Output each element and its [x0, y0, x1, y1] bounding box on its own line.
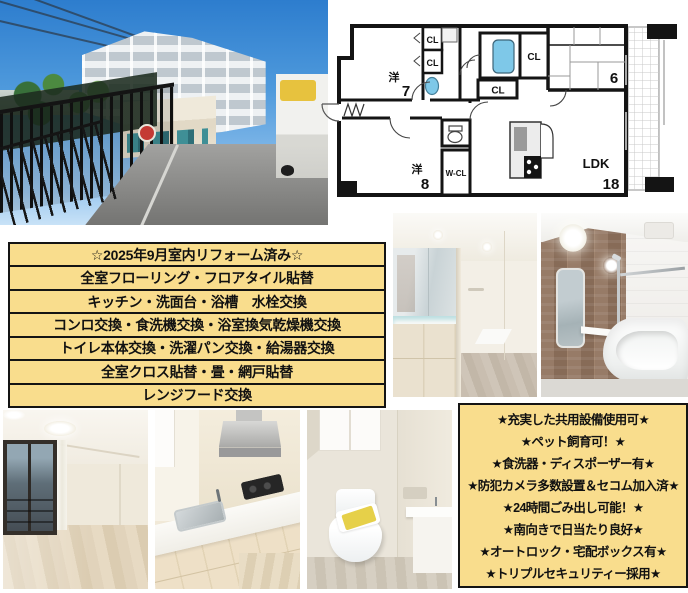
small-faucet: [435, 497, 438, 506]
feature-line: ★トリプルセキュリティー採用★: [461, 563, 685, 582]
wall-corner-line: [119, 464, 121, 532]
bathtub-inner: [616, 331, 677, 369]
balcony-railing: [7, 490, 53, 532]
feature-line: ★防犯カメラ多数設置＆セコム加入済★: [461, 475, 685, 494]
renovation-row: レンジフード交換: [10, 383, 384, 406]
round-ceiling-light: [44, 421, 76, 436]
hand-wash-counter: [406, 507, 452, 518]
vanity-cabinet: [393, 324, 456, 397]
mirror-seam: [428, 248, 430, 316]
ventilation-dryer-unit: [644, 222, 674, 239]
label-closet-2: CL: [427, 58, 439, 68]
round-ceiling-light: [559, 224, 587, 252]
feature-line: ★充実した共用設備使用可★: [461, 409, 685, 428]
renovation-row: キッチン・洗面台・浴槽 水栓交換: [10, 289, 384, 312]
feature-line: ★オートロック・宅配ボックス有★: [461, 541, 685, 560]
bathroom-mirror: [556, 268, 585, 347]
label-walkin-closet: W-CL: [446, 169, 467, 178]
hood-duct: [236, 410, 262, 423]
corner-block-bottom-right: [645, 177, 674, 192]
cabinet-seam: [349, 410, 351, 450]
floor-plan-drawing: 洋 7 CL CL CL CL 6 洋 8 W-CL LDK 18: [330, 0, 688, 210]
drawer-line: [393, 358, 456, 360]
renovation-info-table: ☆2025年9月室内リフォーム済み☆ 全室フローリング・フロアタイル貼替 キッチ…: [8, 242, 386, 408]
label-closet-4: CL: [491, 86, 504, 97]
corner-block-bottom-left: [340, 181, 357, 193]
counter-panel: [413, 517, 452, 572]
photo-bathroom: [541, 213, 688, 397]
upper-cabinet: [155, 410, 175, 467]
range-hood-base: [219, 448, 281, 457]
corner-light: [3, 410, 25, 420]
range-hood: [219, 421, 281, 448]
feature-line: ★24時間ごみ出し可能！★: [461, 497, 685, 516]
label-closet-3: CL: [527, 52, 540, 63]
truck-logo: [280, 80, 317, 101]
photo-washroom-vanity: [393, 213, 537, 397]
feature-line: ★南向きで日当たり良好★: [461, 519, 685, 538]
renovation-row: 全室クロス貼替・畳・網戸貼替: [10, 359, 384, 382]
property-features-box: ★充実した共用設備使用可★ ★ペット飼育可！★ ★食洗器・ディスポーザー有★ ★…: [458, 403, 688, 588]
shower-slide-bar: [617, 261, 620, 329]
laundry-pan: [442, 28, 457, 42]
listing-flyer-canvas: 洋 7 CL CL CL CL 6 洋 8 W-CL LDK 18 ☆2025年…: [0, 0, 688, 593]
label-ldk: LDK: [583, 156, 610, 171]
washbasin: [426, 78, 439, 95]
floor-plan: 洋 7 CL CL CL CL 6 洋 8 W-CL LDK 18: [330, 0, 688, 210]
cabinet-side-shadow: [456, 248, 460, 397]
curb-line: [140, 144, 179, 225]
vanity-counter: [393, 316, 459, 324]
round-red-sign: [138, 124, 156, 142]
renovation-row: ☆2025年9月室内リフォーム済み☆: [10, 244, 384, 265]
toilet-bowl-icon: [448, 132, 462, 143]
upper-cabinet: [319, 410, 381, 451]
renovation-row: 全室フローリング・フロアタイル貼替: [10, 265, 384, 288]
label-western7-size: 7: [402, 83, 410, 100]
balcony: [628, 27, 664, 190]
wall-niche: [403, 487, 428, 500]
truck: [276, 74, 328, 178]
feature-line: ★食洗器・ディスポーザー有★: [461, 453, 685, 472]
label-ldk-size: 18: [603, 176, 620, 193]
towel-bar: [468, 288, 484, 291]
photo-building-exterior: [0, 0, 328, 225]
window-glass: [7, 444, 53, 531]
label-western8-kanji: 洋: [412, 162, 423, 176]
bathroom-floor: [541, 379, 688, 397]
toilet-tank-icon: [449, 126, 462, 131]
label-western8-size: 8: [421, 176, 429, 193]
sheer-curtain: [57, 440, 67, 530]
label-western7-kanji: 洋: [389, 70, 400, 84]
downlight: [433, 230, 443, 240]
photo-kitchen: [155, 410, 300, 589]
mirror-reflection: [397, 255, 415, 312]
renovation-row: トイレ本体交換・洗濯パン交換・給湯器交換: [10, 336, 384, 359]
bathtub: [493, 40, 514, 73]
photo-living-room: [3, 410, 148, 589]
renovation-row: コンロ交換・食洗機交換・浴室換気乾燥機交換: [10, 312, 384, 335]
vanity-mirror-cabinet: [393, 248, 459, 316]
corner-block-top-right: [647, 24, 677, 39]
wood-floor: [239, 553, 300, 589]
feature-line: ★ペット飼育可！★: [461, 431, 685, 450]
truck-wheel: [281, 165, 295, 175]
photo-toilet: [307, 410, 452, 589]
balcony-window: [3, 440, 57, 535]
floor-mat: [475, 329, 512, 344]
label-closet-1: CL: [427, 35, 439, 45]
label-tatami-size: 6: [610, 70, 618, 87]
bathtub: [603, 318, 688, 384]
